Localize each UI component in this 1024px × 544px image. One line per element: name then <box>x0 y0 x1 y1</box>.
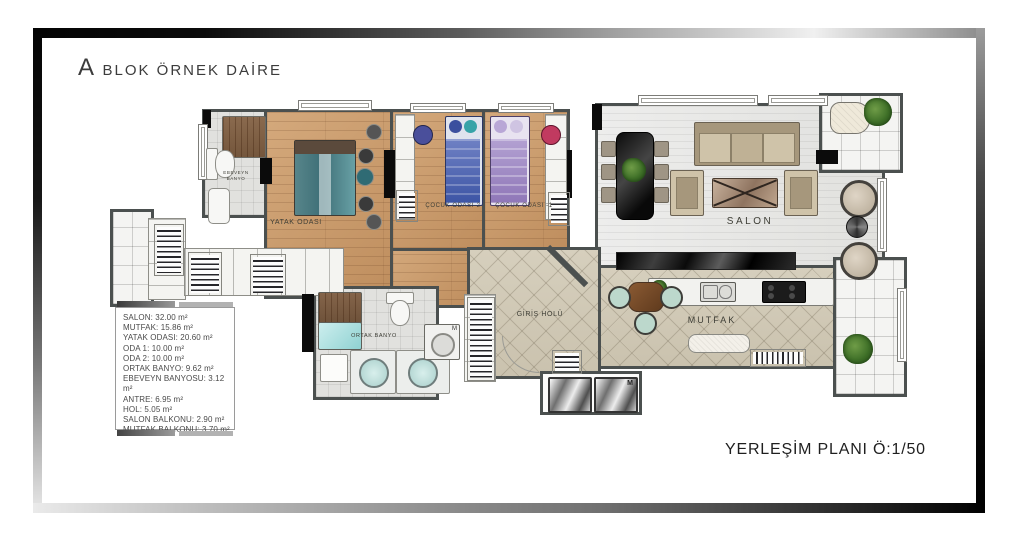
column <box>816 150 838 164</box>
window <box>877 178 887 252</box>
hall-closet-hangers <box>467 297 495 381</box>
sofa-cushion <box>699 133 731 163</box>
label-mutfak: MUTFAK <box>662 315 762 325</box>
sink <box>208 188 230 224</box>
burner <box>768 285 774 291</box>
round-chair <box>840 242 878 280</box>
legend-item: SALON BALKONU: 2.90 m² <box>123 415 234 425</box>
legend-box: SALON: 32.00 m² MUTFAK: 15.86 m² YATAK O… <box>115 307 235 430</box>
sofa-cushion <box>763 133 795 163</box>
legend-deco-bar <box>179 431 233 436</box>
table-plant <box>622 158 646 182</box>
bath-mat <box>320 354 348 382</box>
legend-deco-bar <box>117 430 175 436</box>
legend-item: ODA 1: 10.00 m² <box>123 344 234 354</box>
elevator-door: M <box>594 377 638 413</box>
wardrobe-hanger-rack <box>154 224 184 276</box>
legend-item: ORTAK BANYO: 9.62 m² <box>123 364 234 374</box>
dining-chair <box>654 141 669 157</box>
label-ortak-banyo: ORTAK BANYO <box>336 333 412 339</box>
shower <box>318 292 362 324</box>
label-yatak-odasi: YATAK ODASI <box>236 219 356 226</box>
column <box>260 158 272 184</box>
window <box>298 100 372 111</box>
sink-basin <box>703 285 718 299</box>
page-title-rest: BLOK ÖRNEK DAİRE <box>102 62 282 79</box>
wardrobe-hanger-rack <box>250 254 286 296</box>
frame-right <box>976 28 985 513</box>
double-bed <box>294 140 356 216</box>
floor-plan-page: { "page": { "title_initial": "A", "title… <box>0 0 1024 544</box>
pillow <box>464 120 477 133</box>
dining-chair <box>654 164 669 180</box>
wash-basin <box>408 358 438 388</box>
column <box>592 104 602 130</box>
frame-left <box>33 28 42 513</box>
balcony-plant <box>843 334 873 364</box>
kitchen-counter-dark <box>616 252 796 270</box>
coffee-table <box>712 178 778 208</box>
washing-machine: M <box>424 324 460 360</box>
pillow <box>510 120 523 133</box>
decor-fan <box>366 124 382 140</box>
sofa <box>694 122 800 166</box>
kitchen-bench <box>688 334 750 353</box>
legend-item: HOL: 5.05 m² <box>123 405 234 415</box>
burner <box>789 293 795 299</box>
pillow <box>494 120 507 133</box>
wash-basin <box>359 358 389 388</box>
label-giris-holu: GİRİŞ HOLÜ <box>488 311 592 318</box>
armchair <box>670 170 704 216</box>
kitchen-balcony <box>836 260 904 394</box>
burner <box>789 285 795 291</box>
label-cocuk-odasi-1: ÇOCUK ODASI -1 <box>464 203 584 209</box>
legend-item: SALON: 32.00 m² <box>123 313 234 323</box>
toilet-bowl <box>390 300 410 326</box>
radiator <box>548 192 570 226</box>
vanity <box>350 350 396 394</box>
single-bed-blue <box>445 116 483 206</box>
window <box>638 95 758 106</box>
pillow <box>449 120 462 133</box>
window <box>498 103 554 113</box>
side-table <box>356 168 374 186</box>
legend-item: EBEVEYN BANYOSU: 3.12 m² <box>123 374 234 394</box>
blanket <box>491 139 527 203</box>
legend-item: YATAK ODASI: 20.60 m² <box>123 333 234 343</box>
elevator-door <box>548 377 592 413</box>
dining-chair <box>601 141 616 157</box>
frame-top <box>33 28 985 38</box>
washer-drum <box>431 333 455 357</box>
nightstand <box>358 196 374 212</box>
single-bed-purple <box>490 116 530 206</box>
round-chair <box>840 180 878 218</box>
dining-chair <box>601 187 616 203</box>
radiator <box>750 349 806 367</box>
window <box>768 95 828 106</box>
window <box>897 288 907 362</box>
page-title-initial: A <box>78 54 96 81</box>
cooktop <box>762 281 806 303</box>
dining-chair <box>654 187 669 203</box>
label-salon: SALON <box>700 216 800 227</box>
kitchen-sink <box>700 282 736 302</box>
armchair-seat <box>790 177 812 209</box>
balcony-plant <box>864 98 892 126</box>
nightstand <box>358 148 374 164</box>
kitchen-chair <box>634 312 657 335</box>
legend-item: ODA 2: 10.00 m² <box>123 354 234 364</box>
wardrobe-hanger-rack <box>188 252 222 296</box>
elevator-label: M <box>627 380 633 387</box>
page-title: A BLOK ÖRNEK DAİRE <box>78 54 282 82</box>
pouf-red <box>541 125 561 145</box>
dining-chair <box>601 164 616 180</box>
label-ebeveyn-banyo: EBEVEYN BANYO <box>214 170 258 181</box>
radiator <box>552 350 582 374</box>
legend-item: MUTFAK: 15.86 m² <box>123 323 234 333</box>
decor-fan <box>366 214 382 230</box>
blanket <box>446 139 480 203</box>
legend-item: ANTRE: 6.95 m² <box>123 395 234 405</box>
sofa-cushion <box>731 133 763 163</box>
armchair <box>784 170 818 216</box>
kitchen-chair <box>660 286 683 309</box>
pouf-blue <box>413 125 433 145</box>
kitchen-chair <box>608 286 631 309</box>
frame-bottom <box>33 503 985 513</box>
window <box>410 103 466 113</box>
bed-pillows <box>295 141 355 154</box>
column <box>302 294 314 352</box>
scale-note: YERLEŞİM PLANI Ö:1/50 <box>725 441 926 459</box>
armchair-seat <box>676 177 698 209</box>
bed-runner <box>319 154 331 215</box>
side-terrace <box>113 212 151 304</box>
round-side-table <box>846 216 868 238</box>
sink-basin <box>719 285 732 299</box>
burner <box>768 293 774 299</box>
kitchen-table <box>628 282 664 312</box>
washer-label: M <box>452 326 457 332</box>
